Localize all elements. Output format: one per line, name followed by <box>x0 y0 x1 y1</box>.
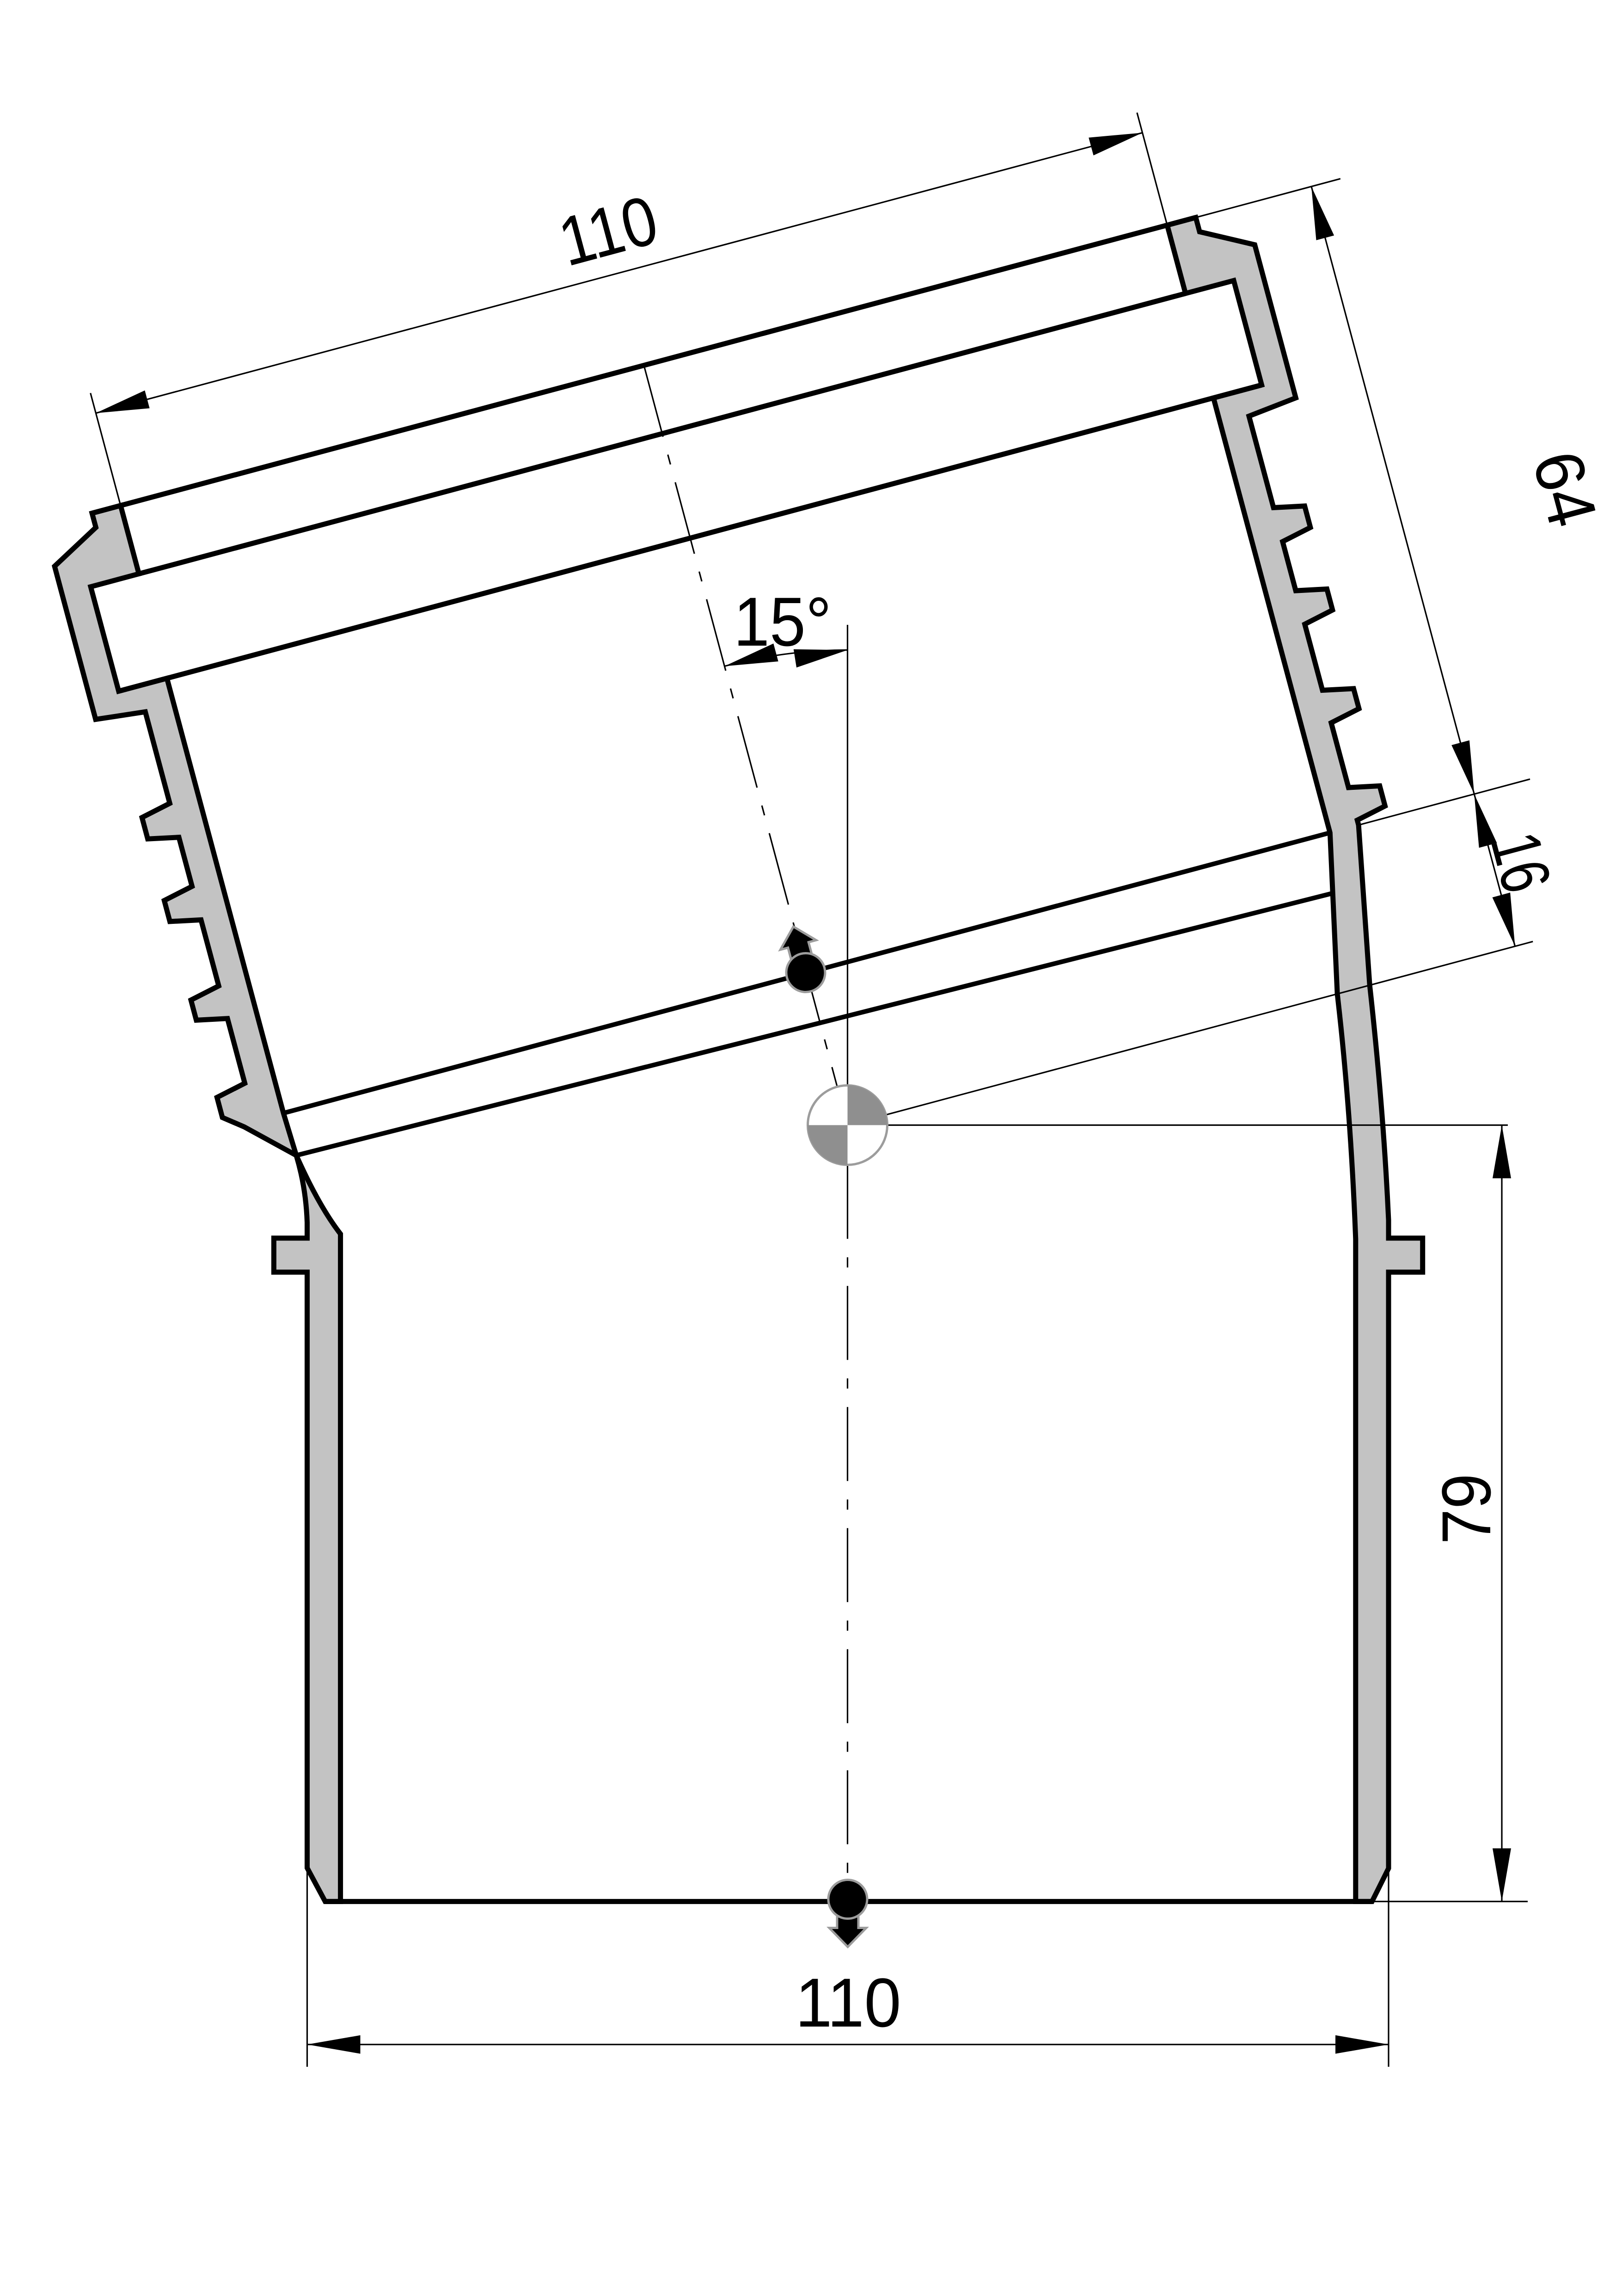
svg-text:79: 79 <box>1427 1474 1505 1545</box>
svg-text:15°: 15° <box>734 583 832 660</box>
svg-text:110: 110 <box>796 1964 901 2041</box>
